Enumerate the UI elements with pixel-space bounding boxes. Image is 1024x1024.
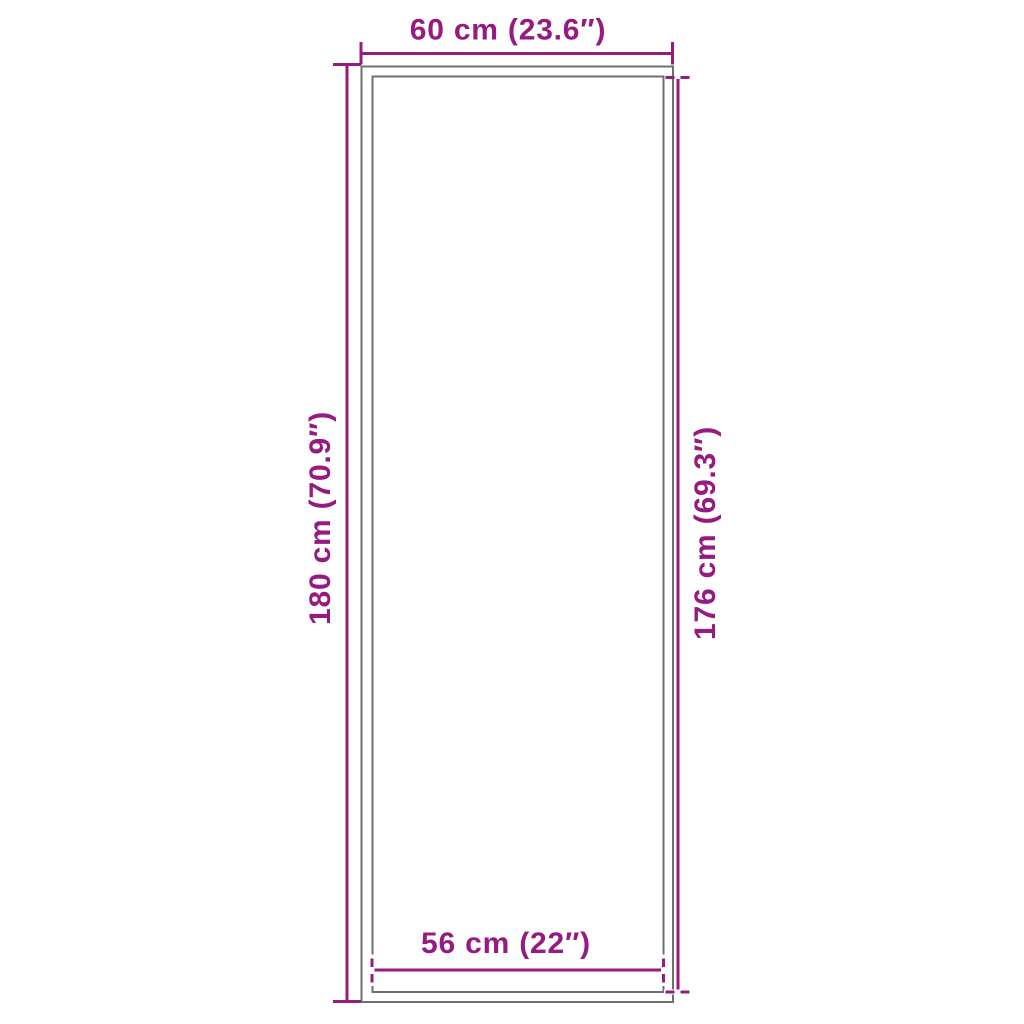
svg-text:56 cm (22″): 56 cm (22″) [421, 927, 591, 960]
svg-text:60 cm (23.6″): 60 cm (23.6″) [410, 14, 607, 47]
svg-text:180 cm (70.9″): 180 cm (70.9″) [304, 411, 337, 625]
svg-text:176 cm (69.3″): 176 cm (69.3″) [689, 426, 722, 640]
